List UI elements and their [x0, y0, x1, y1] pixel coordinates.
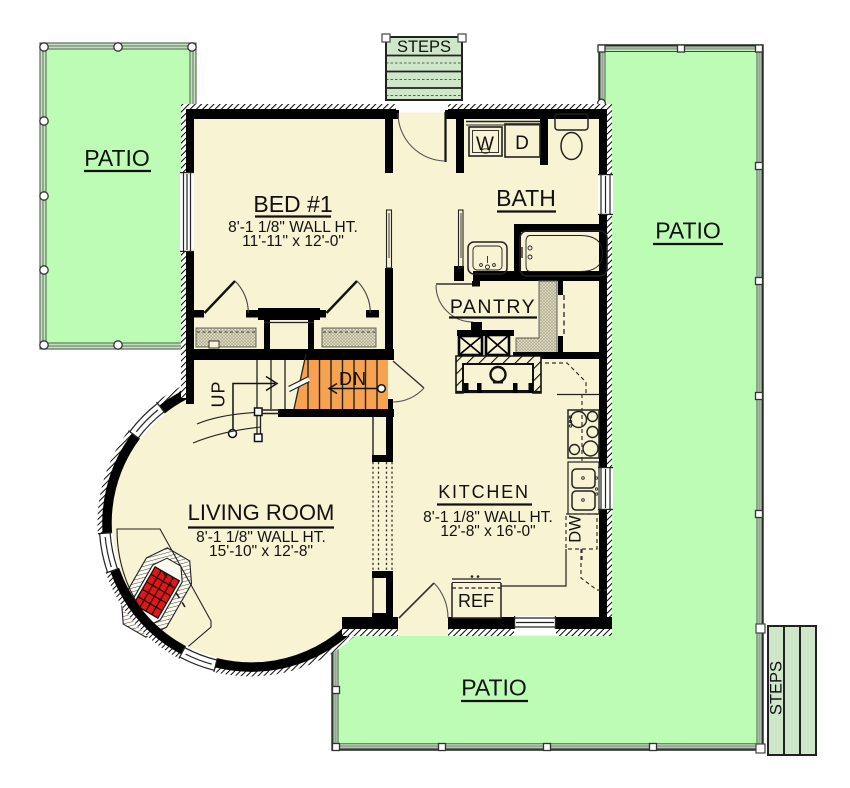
- svg-text:UP: UP: [209, 380, 229, 407]
- svg-text:12'-8" x 16'-0": 12'-8" x 16'-0": [440, 523, 535, 540]
- svg-text:REF: REF: [458, 591, 494, 611]
- svg-text:KITCHEN: KITCHEN: [438, 482, 530, 502]
- svg-text:STEPS: STEPS: [768, 661, 786, 715]
- svg-text:PANTRY: PANTRY: [450, 296, 536, 318]
- svg-text:D: D: [515, 133, 529, 154]
- svg-text:PATIO: PATIO: [461, 675, 527, 701]
- svg-text:LIVING ROOM: LIVING ROOM: [188, 500, 335, 525]
- svg-text:15'-10" x 12'-8": 15'-10" x 12'-8": [209, 543, 313, 560]
- svg-text:11'-11" x 12'-0": 11'-11" x 12'-0": [242, 233, 344, 250]
- svg-text:W: W: [476, 134, 494, 155]
- svg-text:PATIO: PATIO: [84, 145, 150, 171]
- svg-text:BATH: BATH: [496, 185, 556, 211]
- svg-text:BED #1: BED #1: [253, 191, 332, 217]
- svg-text:DN: DN: [339, 369, 367, 389]
- svg-text:STEPS: STEPS: [397, 38, 451, 56]
- svg-text:DW: DW: [567, 515, 585, 543]
- svg-text:PATIO: PATIO: [655, 218, 721, 244]
